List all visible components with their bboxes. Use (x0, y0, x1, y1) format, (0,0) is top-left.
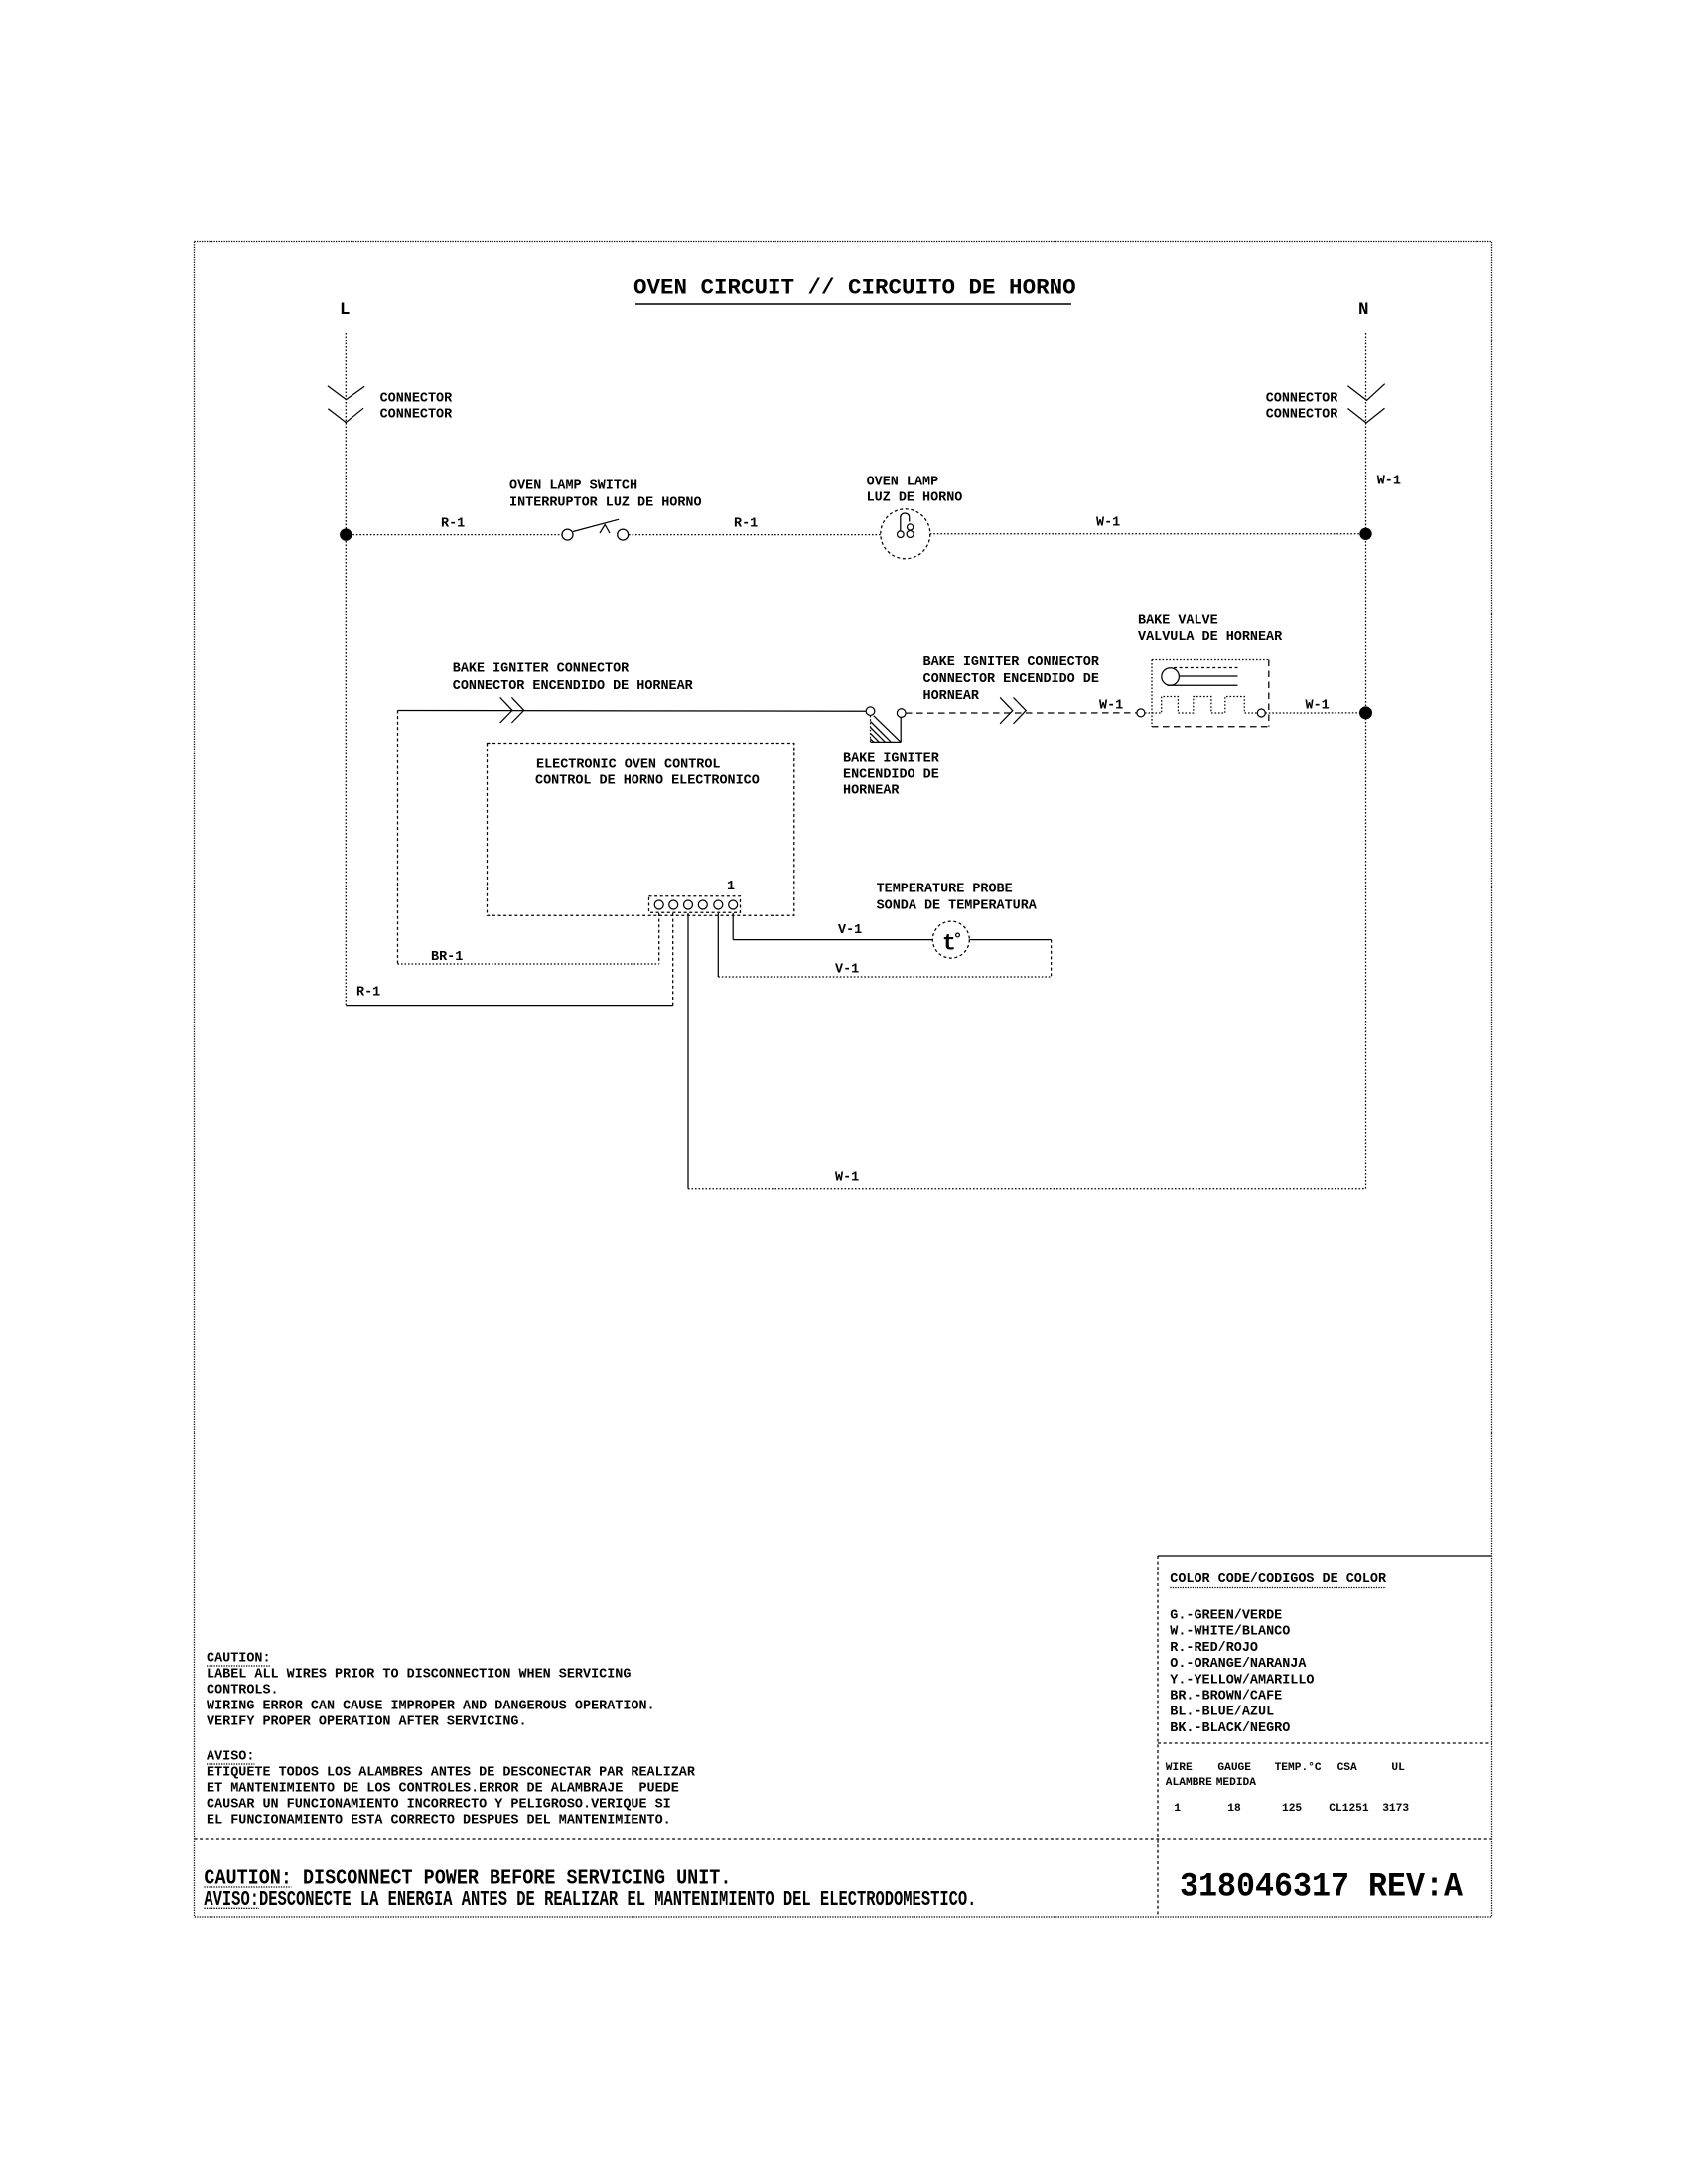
svg-text:318046317 REV:A: 318046317 REV:A (1180, 1869, 1464, 1907)
svg-text:3173: 3173 (1382, 1803, 1409, 1815)
svg-text:1: 1 (727, 880, 735, 894)
svg-text:O.-ORANGE/NARANJA: O.-ORANGE/NARANJA (1170, 1657, 1307, 1672)
svg-text:TEMPERATURE PROBE: TEMPERATURE PROBE (877, 883, 1013, 897)
svg-text:OVEN CIRCUIT // CIRCUITO DE HO: OVEN CIRCUIT // CIRCUITO DE HORNO (633, 275, 1076, 301)
svg-text:VALVULA DE HORNEAR: VALVULA DE HORNEAR (1138, 630, 1283, 645)
svg-text:L: L (340, 300, 351, 320)
svg-text:BR.-BROWN/CAFE: BR.-BROWN/CAFE (1170, 1690, 1282, 1705)
svg-text:GAUGE: GAUGE (1217, 1762, 1251, 1774)
svg-text:OVEN LAMP: OVEN LAMP (867, 476, 939, 490)
svg-text:BAKE IGNITER CONNECTOR: BAKE IGNITER CONNECTOR (453, 662, 630, 677)
svg-text:1: 1 (1174, 1803, 1181, 1815)
svg-text:MEDIDA: MEDIDA (1216, 1777, 1257, 1789)
svg-text:ALAMBRE: ALAMBRE (1166, 1777, 1212, 1789)
svg-text:CONNECTOR: CONNECTOR (380, 392, 454, 407)
svg-text:ENCENDIDO DE: ENCENDIDO DE (843, 768, 939, 783)
svg-text:CONNECTOR: CONNECTOR (1266, 408, 1339, 423)
svg-text:V-1: V-1 (838, 923, 862, 938)
svg-text:W-1: W-1 (1377, 475, 1401, 489)
svg-text:W-1: W-1 (835, 1171, 859, 1186)
svg-text:BR-1: BR-1 (431, 950, 463, 965)
svg-text:HORNEAR: HORNEAR (923, 689, 980, 704)
svg-text:BK.-BLACK/NEGRO: BK.-BLACK/NEGRO (1170, 1721, 1290, 1736)
svg-text:INTERRUPTOR LUZ DE HORNO: INTERRUPTOR LUZ DE HORNO (509, 496, 702, 511)
svg-text:W.-WHITE/BLANCO: W.-WHITE/BLANCO (1170, 1625, 1290, 1640)
svg-text:EL FUNCIONAMIENTO ESTA CORRECT: EL FUNCIONAMIENTO ESTA CORRECTO DESPUES … (207, 1814, 671, 1829)
svg-text:R-1: R-1 (734, 517, 758, 532)
svg-text:AVISO:: AVISO: (207, 1750, 254, 1765)
svg-text:WIRE: WIRE (1166, 1762, 1193, 1774)
svg-text:TEMP.°C: TEMP.°C (1275, 1762, 1322, 1774)
svg-text:W-1: W-1 (1099, 698, 1123, 713)
svg-text:COLOR CODE/CODIGOS DE COLOR: COLOR CODE/CODIGOS DE COLOR (1170, 1572, 1387, 1587)
svg-text:ETIQUETE TODOS LOS ALAMBRES AN: ETIQUETE TODOS LOS ALAMBRES ANTES DE DES… (207, 1766, 696, 1781)
svg-text:18: 18 (1227, 1803, 1241, 1815)
svg-text:LUZ DE HORNO: LUZ DE HORNO (867, 491, 963, 506)
svg-text:ET MANTENIMIENTO DE LOS CONTRO: ET MANTENIMIENTO DE LOS CONTROLES.ERROR … (207, 1782, 679, 1797)
svg-text:V-1: V-1 (835, 963, 859, 978)
svg-text:BAKE VALVE: BAKE VALVE (1138, 614, 1218, 628)
svg-text:AVISO:DESCONECTE LA ENERGIA AN: AVISO:DESCONECTE LA ENERGIA ANTES DE REA… (204, 1889, 976, 1912)
svg-text:G.-GREEN/VERDE: G.-GREEN/VERDE (1170, 1609, 1282, 1624)
svg-text:CONNECTOR: CONNECTOR (1266, 392, 1339, 407)
svg-text:CSA: CSA (1337, 1762, 1357, 1774)
svg-text:LABEL ALL WIRES PRIOR TO DISCO: LABEL ALL WIRES PRIOR TO DISCONNECTION W… (207, 1668, 631, 1683)
svg-text:CONNECTOR ENCENDIDO DE HORNEAR: CONNECTOR ENCENDIDO DE HORNEAR (453, 679, 694, 694)
svg-text:UL: UL (1391, 1762, 1405, 1774)
svg-text:CAUTION:: CAUTION: (207, 1652, 271, 1667)
svg-text:CL1251: CL1251 (1329, 1803, 1369, 1815)
svg-text:W-1: W-1 (1306, 698, 1330, 713)
svg-text:BAKE IGNITER CONNECTOR: BAKE IGNITER CONNECTOR (923, 655, 1100, 670)
svg-text:HORNEAR: HORNEAR (843, 784, 900, 799)
svg-text:Y.-YELLOW/AMARILLO: Y.-YELLOW/AMARILLO (1170, 1673, 1314, 1688)
svg-text:CAUSAR UN FUNCIONAMIENTO INCOR: CAUSAR UN FUNCIONAMIENTO INCORRECTO Y PE… (207, 1798, 671, 1813)
svg-text:OVEN LAMP SWITCH: OVEN LAMP SWITCH (509, 479, 637, 494)
svg-text:R-1: R-1 (441, 517, 465, 532)
svg-text:CONNECTOR: CONNECTOR (380, 408, 454, 423)
svg-text:SONDA DE TEMPERATURA: SONDA DE TEMPERATURA (877, 899, 1038, 914)
svg-text:t: t (942, 931, 956, 957)
svg-text:BL.-BLUE/AZUL: BL.-BLUE/AZUL (1170, 1706, 1274, 1720)
svg-text:BAKE IGNITER: BAKE IGNITER (843, 752, 940, 767)
svg-text:125: 125 (1282, 1803, 1302, 1815)
svg-text:N: N (1358, 300, 1369, 320)
svg-text:CAUTION: DISCONNECT POWER BEFO: CAUTION: DISCONNECT POWER BEFORE SERVICI… (204, 1868, 731, 1891)
svg-text:R.-RED/ROJO: R.-RED/ROJO (1170, 1641, 1258, 1656)
svg-text:W-1: W-1 (1096, 516, 1120, 531)
svg-text:WIRING ERROR CAN CAUSE IMPROPE: WIRING ERROR CAN CAUSE IMPROPER AND DANG… (207, 1700, 655, 1714)
svg-text:ELECTRONIC OVEN CONTROL: ELECTRONIC OVEN CONTROL (536, 758, 720, 773)
svg-text:R-1: R-1 (356, 986, 380, 1001)
svg-text:CONTROL DE HORNO ELECTRONICO: CONTROL DE HORNO ELECTRONICO (535, 774, 760, 789)
svg-text:CONNECTOR ENCENDIDO DE: CONNECTOR ENCENDIDO DE (923, 672, 1099, 687)
svg-text:CONTROLS.: CONTROLS. (207, 1684, 279, 1699)
svg-text:VERIFY PROPER OPERATION AFTER: VERIFY PROPER OPERATION AFTER SERVICING. (207, 1715, 527, 1730)
